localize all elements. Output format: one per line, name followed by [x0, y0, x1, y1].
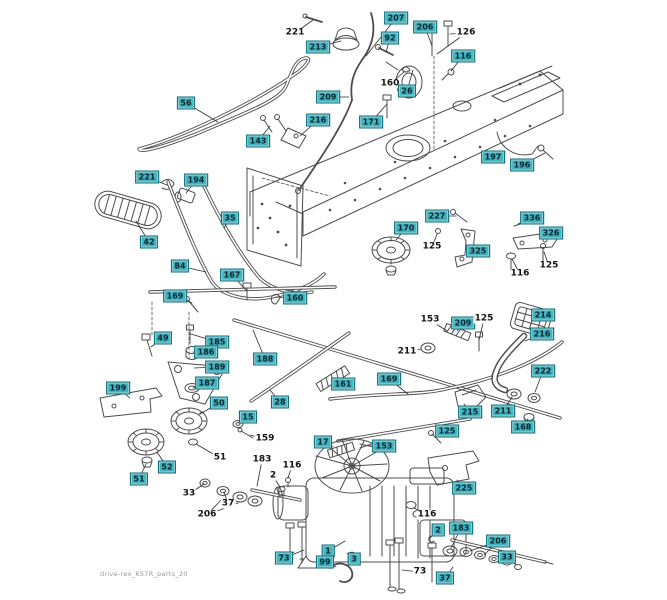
part-callout-125: 125 [435, 425, 459, 438]
part-callout-211: 211 [491, 405, 515, 418]
part-callout-188: 188 [253, 353, 277, 366]
part-callout-209: 209 [451, 317, 475, 330]
part-callout-73: 73 [413, 568, 428, 577]
part-callout-125: 125 [474, 315, 495, 324]
part-callout-160: 160 [283, 292, 307, 305]
part-callout-28: 28 [271, 396, 289, 409]
part-callout-92: 92 [381, 32, 399, 45]
part-callout-169: 169 [163, 290, 187, 303]
part-callout-99: 99 [316, 556, 334, 569]
part-callout-153: 153 [420, 316, 441, 325]
part-callout-2: 2 [269, 472, 277, 481]
part-callout-37: 37 [436, 572, 454, 585]
part-callout-50: 50 [210, 397, 228, 410]
part-callout-161: 161 [331, 378, 355, 391]
part-callout-227: 227 [425, 210, 449, 223]
part-callout-187: 187 [195, 377, 219, 390]
part-callout-194: 194 [184, 174, 208, 187]
part-callout-3: 3 [348, 553, 361, 566]
part-callout-206: 206 [413, 21, 437, 34]
part-callout-52: 52 [158, 461, 176, 474]
part-callout-51: 51 [130, 473, 148, 486]
part-callout-125: 125 [539, 262, 560, 271]
part-callout-183: 183 [252, 456, 273, 465]
idler-pulleys-art [128, 408, 253, 467]
part-callout-189: 189 [205, 361, 229, 374]
part-callout-216: 216 [306, 114, 330, 127]
part-callout-159: 159 [255, 435, 276, 444]
part-callout-199: 199 [106, 382, 130, 395]
part-callout-126: 126 [456, 29, 477, 38]
idler-arm-art [100, 302, 226, 417]
part-callout-116: 116 [451, 50, 475, 63]
part-callout-221: 221 [135, 171, 159, 184]
part-callout-225: 225 [452, 482, 476, 495]
part-callout-116: 116 [510, 270, 531, 279]
part-callout-116: 116 [282, 462, 303, 471]
part-callout-33: 33 [182, 490, 197, 499]
watermark-text: drive-rex_K57R_parts_20 [100, 570, 188, 578]
part-callout-37: 37 [221, 500, 236, 509]
part-callout-167: 167 [220, 269, 244, 282]
part-callout-42: 42 [140, 236, 158, 249]
part-callout-186: 186 [194, 346, 218, 359]
part-callout-196: 196 [510, 159, 534, 172]
part-callout-216: 216 [530, 328, 554, 341]
part-callout-215: 215 [458, 406, 482, 419]
part-callout-143: 143 [246, 135, 270, 148]
part-callout-213: 213 [306, 41, 330, 54]
part-callout-56: 56 [177, 97, 195, 110]
part-callout-214: 214 [531, 309, 555, 322]
part-callout-325: 325 [466, 245, 490, 258]
part-callout-33: 33 [498, 551, 516, 564]
transaxle-art [252, 439, 466, 568]
part-callout-49: 49 [154, 332, 172, 345]
part-callout-2: 2 [432, 524, 445, 537]
part-callout-336: 336 [520, 212, 544, 225]
part-callout-170: 170 [394, 222, 418, 235]
part-callout-168: 168 [511, 421, 535, 434]
part-callout-26: 26 [398, 85, 416, 98]
part-callout-73: 73 [275, 552, 293, 565]
part-callout-15: 15 [239, 411, 257, 424]
foot-pedal-art [92, 179, 196, 231]
part-callout-209: 209 [316, 91, 340, 104]
part-callout-206: 206 [486, 535, 510, 548]
part-callout-51: 51 [213, 454, 228, 463]
part-callout-17: 17 [314, 436, 332, 449]
part-callout-326: 326 [539, 227, 563, 240]
part-callout-116: 116 [417, 511, 438, 520]
part-callout-169: 169 [377, 373, 401, 386]
parts-diagram-canvas: 2212132072061269211656160262092161711431… [0, 0, 667, 600]
shift-lever-art [261, 13, 554, 194]
part-callout-125: 125 [422, 243, 443, 252]
part-callout-35: 35 [221, 212, 239, 225]
part-callout-183: 183 [449, 522, 473, 535]
part-callout-153: 153 [372, 440, 396, 453]
part-callout-171: 171 [359, 116, 383, 129]
part-callout-84: 84 [171, 260, 189, 273]
part-callout-221: 221 [285, 29, 306, 38]
part-callout-207: 207 [384, 12, 408, 25]
part-callout-222: 222 [531, 365, 555, 378]
part-callout-206: 206 [197, 511, 218, 520]
part-callout-211: 211 [397, 348, 418, 357]
part-callout-197: 197 [481, 151, 505, 164]
